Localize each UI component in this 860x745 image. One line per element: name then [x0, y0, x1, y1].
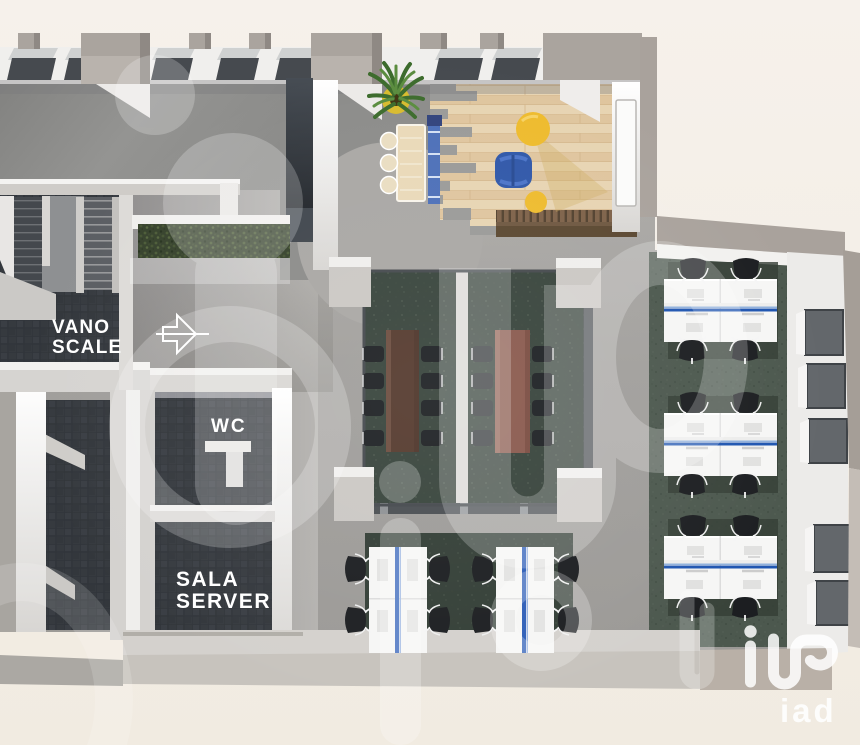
svg-text:iad: iad — [780, 692, 837, 729]
